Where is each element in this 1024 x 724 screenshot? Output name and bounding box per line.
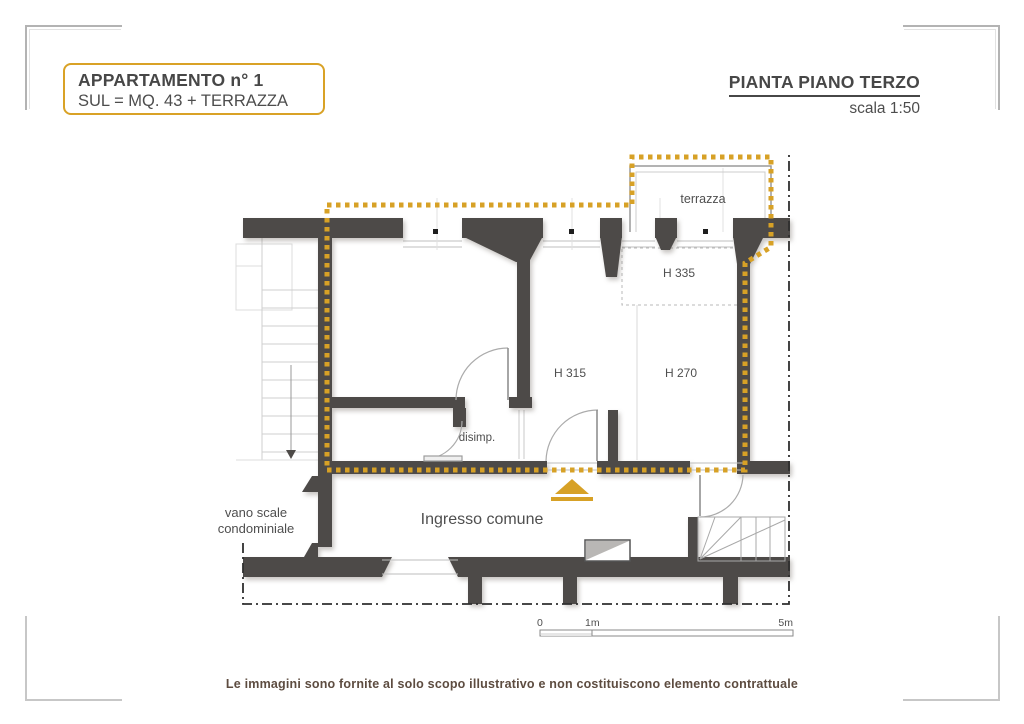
stair-direction-arrow [286, 450, 296, 459]
scale-label-0: 0 [537, 617, 543, 629]
label-vano-scale-line2: condominiale [218, 521, 295, 536]
label-h270: H 270 [665, 366, 697, 380]
floor-plan-sheet: APPARTAMENTO n° 1 SUL = MQ. 43 + TERRAZZ… [0, 0, 1024, 724]
door-arc-apartment-entrance [546, 410, 598, 461]
label-h315: H 315 [554, 366, 586, 380]
door-arc-internal-stair [700, 475, 743, 517]
entrance-arrow-marker [551, 479, 593, 501]
label-vano-scale-line1: vano scale [225, 505, 287, 520]
disclaimer-text: Le immagini sono fornite al solo scopo i… [0, 677, 1024, 691]
scale-label-5m: 5m [778, 617, 793, 629]
stairwell-lines [236, 238, 318, 460]
window-sills [403, 168, 733, 250]
entrance-niche [585, 540, 630, 561]
scale-bar: 0 1m 5m [537, 617, 793, 636]
floor-plan-drawing: terrazza H 335 H 315 H 270 disimp. Ingre… [0, 0, 1024, 724]
label-disimp: disimp. [459, 432, 495, 444]
label-h335: H 335 [663, 266, 695, 280]
room-zone-lines [519, 248, 738, 460]
internal-staircase [698, 517, 785, 561]
label-terrazza: terrazza [680, 192, 725, 206]
door-arc-room-to-disimp [456, 348, 508, 400]
label-ingresso-comune: Ingresso comune [421, 511, 544, 528]
scale-label-1m: 1m [585, 617, 600, 629]
